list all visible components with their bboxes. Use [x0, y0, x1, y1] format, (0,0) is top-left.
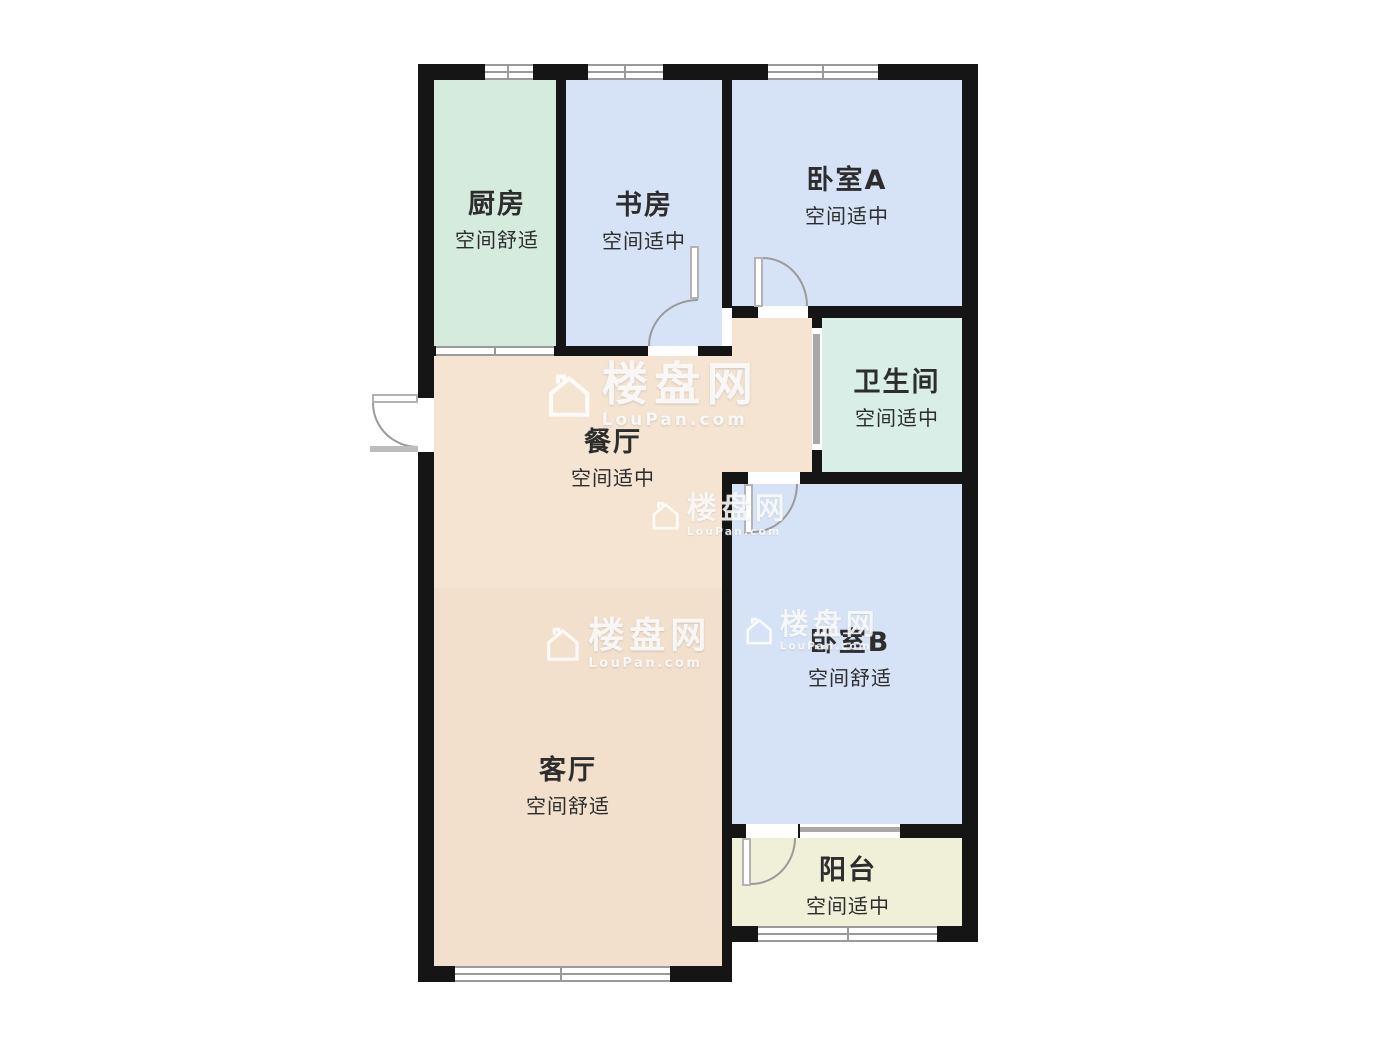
- window-glazing-line: [485, 71, 533, 73]
- kitchen-label: 厨房 空间舒适: [455, 190, 539, 252]
- living-label: 客厅 空间舒适: [526, 756, 610, 818]
- living-subtitle: 空间舒适: [526, 794, 610, 818]
- window-bedroom-b-balcony-glass: [800, 827, 900, 832]
- bedroom-a-name: 卧室A: [805, 166, 889, 196]
- balcony-door-opening: [746, 824, 798, 838]
- bedroom-a-door-leaf: [754, 257, 763, 307]
- window-divider: [624, 66, 626, 78]
- wall-study-bedroom-a: [722, 80, 732, 308]
- window-divider: [822, 66, 824, 78]
- living-name: 客厅: [526, 756, 610, 786]
- wall-living-bedroom-b: [722, 484, 732, 982]
- window-divider: [507, 66, 509, 78]
- wall-exterior-right: [962, 64, 978, 942]
- kitchen-name: 厨房: [455, 190, 539, 220]
- entry-door-swing-arc: [372, 403, 418, 448]
- window-study-top: [588, 64, 663, 80]
- dining-label: 餐厅 空间适中: [571, 428, 655, 490]
- balcony-label: 阳台 空间适中: [806, 856, 890, 918]
- floor-plan: 厨房 空间舒适 书房 空间适中 卧室A 空间适中 卫生间 空间适中 餐厅 空间适…: [0, 0, 1400, 1050]
- wall-exterior-left: [418, 64, 434, 982]
- balcony-door-leaf: [742, 838, 751, 886]
- dining-name: 餐厅: [571, 428, 655, 458]
- entry-door-opening: [418, 398, 434, 452]
- kitchen-sliding-door: [436, 346, 554, 356]
- study-label: 书房 空间适中: [602, 191, 686, 253]
- window-bedroom-a-top: [768, 64, 878, 80]
- study-subtitle: 空间适中: [602, 229, 686, 253]
- window-kitchen-top: [485, 64, 533, 80]
- bedroom-a-label: 卧室A 空间适中: [805, 166, 889, 228]
- window-divider: [560, 968, 562, 980]
- study-door-opening: [648, 346, 698, 356]
- bathroom-subtitle: 空间适中: [854, 406, 941, 430]
- bedroom-b-door-leaf: [744, 484, 753, 534]
- study-name: 书房: [602, 191, 686, 221]
- wall-kitchen-study: [556, 80, 566, 346]
- bedroom-b-subtitle: 空间舒适: [808, 666, 892, 690]
- balcony-subtitle: 空间适中: [806, 894, 890, 918]
- window-living-bottom: [455, 966, 670, 982]
- balcony-name: 阳台: [806, 856, 890, 886]
- bedroom-b-name: 卧室B: [808, 628, 892, 658]
- bedroom-b-label: 卧室B 空间舒适: [808, 628, 892, 690]
- bathroom-label: 卫生间 空间适中: [854, 368, 941, 430]
- window-balcony-bottom: [758, 926, 937, 942]
- kitchen-subtitle: 空间舒适: [455, 228, 539, 252]
- bathroom-name: 卫生间: [854, 368, 941, 398]
- sliding-door-divider: [494, 348, 496, 354]
- window-divider: [847, 928, 849, 940]
- bathroom-sliding-door: [813, 334, 820, 444]
- entry-door-threshold: [370, 446, 418, 452]
- bedroom-a-subtitle: 空间适中: [805, 204, 889, 228]
- bedroom-b-door-opening: [748, 472, 800, 484]
- bedroom-a-door-opening: [758, 306, 808, 318]
- study-door-leaf: [690, 246, 699, 299]
- entry-door-leaf: [372, 394, 418, 403]
- window-glazing-line: [455, 973, 670, 975]
- dining-subtitle: 空间适中: [571, 466, 655, 490]
